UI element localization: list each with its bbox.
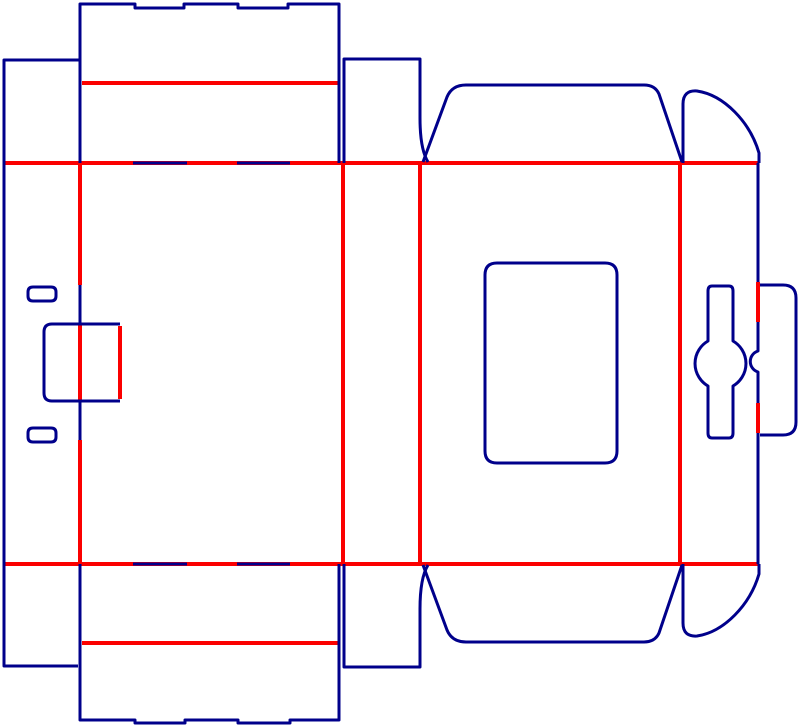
right-column-edge: [750, 163, 758, 564]
window-cutout-outline: [485, 263, 617, 463]
right-top-curved-flap-outline: [683, 91, 759, 163]
slot-top-outline: [28, 287, 56, 301]
glue-strip-outline: [4, 60, 80, 666]
side-bottom-flap-outline: [344, 564, 428, 667]
back-top-dust-flap-outline: [423, 85, 682, 162]
right-bottom-curved-flap-outline: [683, 564, 759, 636]
dieline-svg: [0, 0, 800, 728]
right-lock-tab-outline: [760, 285, 796, 435]
dieline-diagram: [0, 0, 800, 728]
back-bottom-dust-flap-outline: [423, 565, 682, 642]
slot-bottom-outline: [28, 428, 56, 442]
side-top-flap-outline: [344, 59, 428, 163]
spinner-lock-bone-outline: [695, 286, 746, 438]
